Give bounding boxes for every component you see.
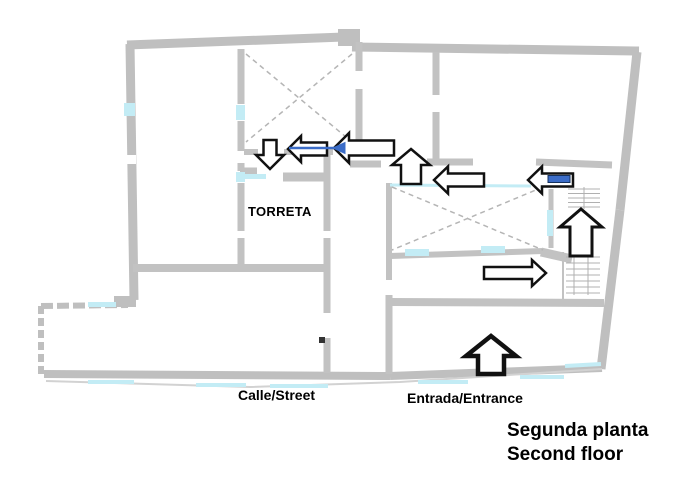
interior-walls: [133, 42, 612, 374]
entrance-label: Entrada/Entrance: [407, 390, 523, 406]
floor-plan-drawing: [0, 0, 698, 484]
floor-title: Segunda planta Second floor: [507, 419, 648, 467]
floor-title-spanish: Segunda planta: [507, 419, 648, 443]
blue-bar-mark-icon: [548, 176, 570, 183]
floor-title-english: Second floor: [507, 443, 648, 467]
street-label: Calle/Street: [238, 387, 315, 403]
torreta-room-label: TORRETA: [248, 204, 312, 219]
route-arrow-up-stairs-icon: [560, 209, 602, 256]
wall-end-marker: [319, 337, 325, 343]
route-arrow-down-icon: [256, 140, 284, 169]
route-arrow-right-icon: [484, 260, 546, 286]
route-arrow-up-junction-icon: [392, 149, 430, 184]
floor-plan-page: TORRETA Calle/Street Entrada/Entrance Se…: [0, 0, 698, 484]
route-arrow-left-east-icon: [434, 167, 484, 194]
upper-stairs-icon: [568, 187, 600, 209]
